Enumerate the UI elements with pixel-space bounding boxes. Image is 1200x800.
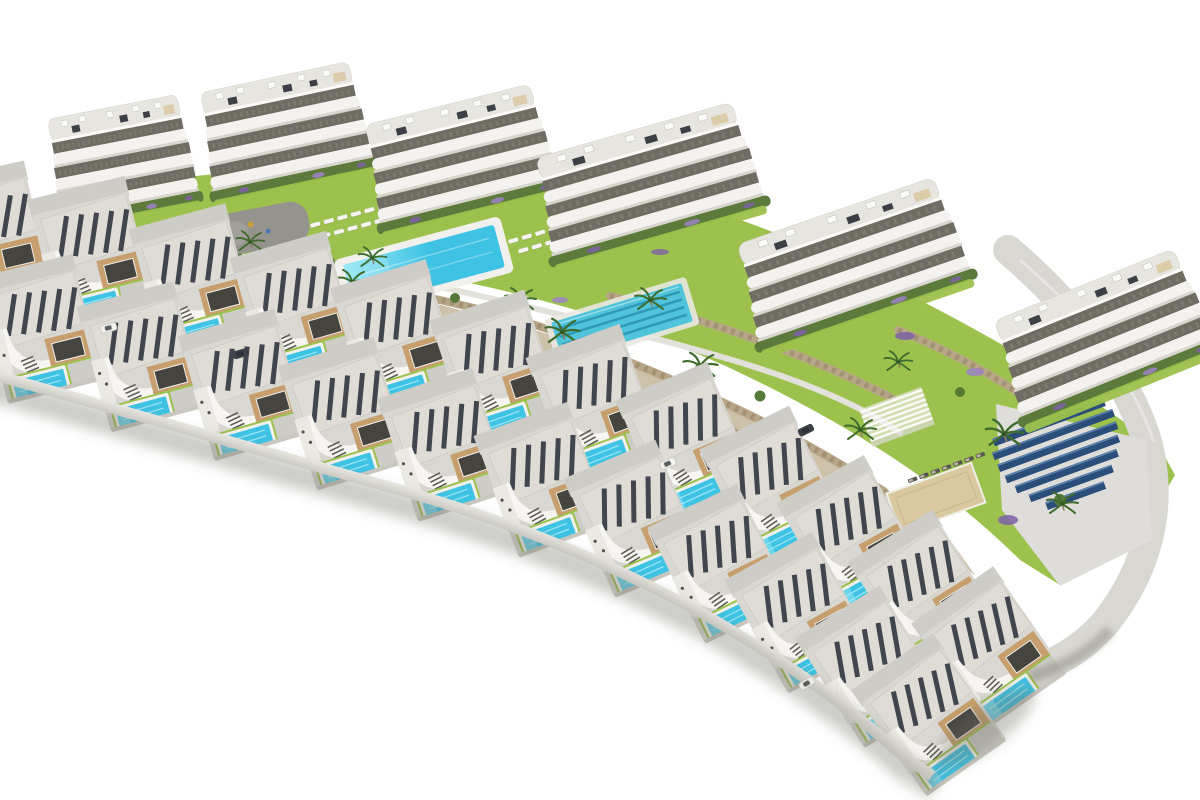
car bbox=[797, 423, 815, 437]
render-canvas: architectural-render Aerial 3D render of… bbox=[0, 0, 1200, 800]
development-render: architectural-render Aerial 3D render of… bbox=[0, 0, 1200, 800]
